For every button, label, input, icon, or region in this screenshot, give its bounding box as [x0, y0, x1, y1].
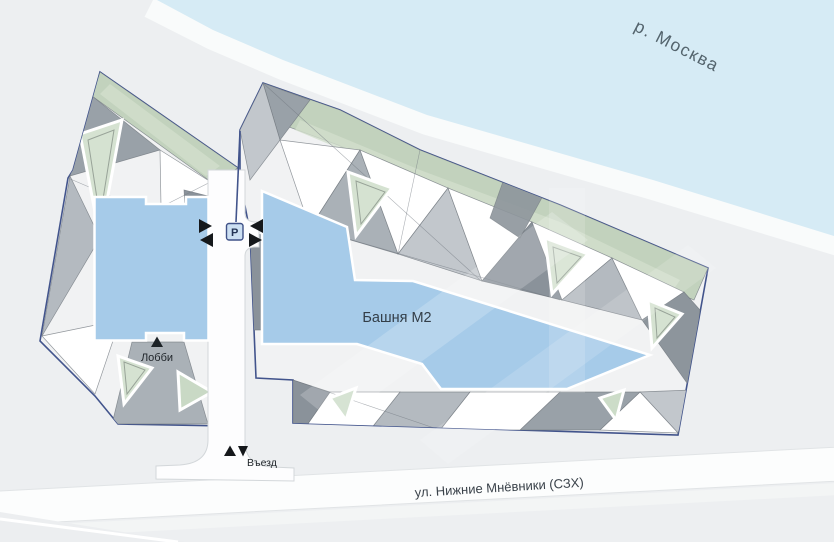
- site-plan-map[interactable]: P Лобби Въезд Башня М2 р. Москва ул. Ниж…: [0, 0, 834, 542]
- parking-icon: P: [231, 227, 238, 239]
- site-plan-canvas[interactable]: P Лобби Въезд Башня М2 р. Москва ул. Ниж…: [0, 0, 834, 542]
- entrance-label: Въезд: [247, 457, 277, 469]
- parking-badge[interactable]: P: [227, 224, 244, 241]
- lobby-label: Лобби: [141, 352, 173, 364]
- tower-label: Башня М2: [362, 310, 431, 326]
- building-footprint-left[interactable]: [95, 197, 209, 341]
